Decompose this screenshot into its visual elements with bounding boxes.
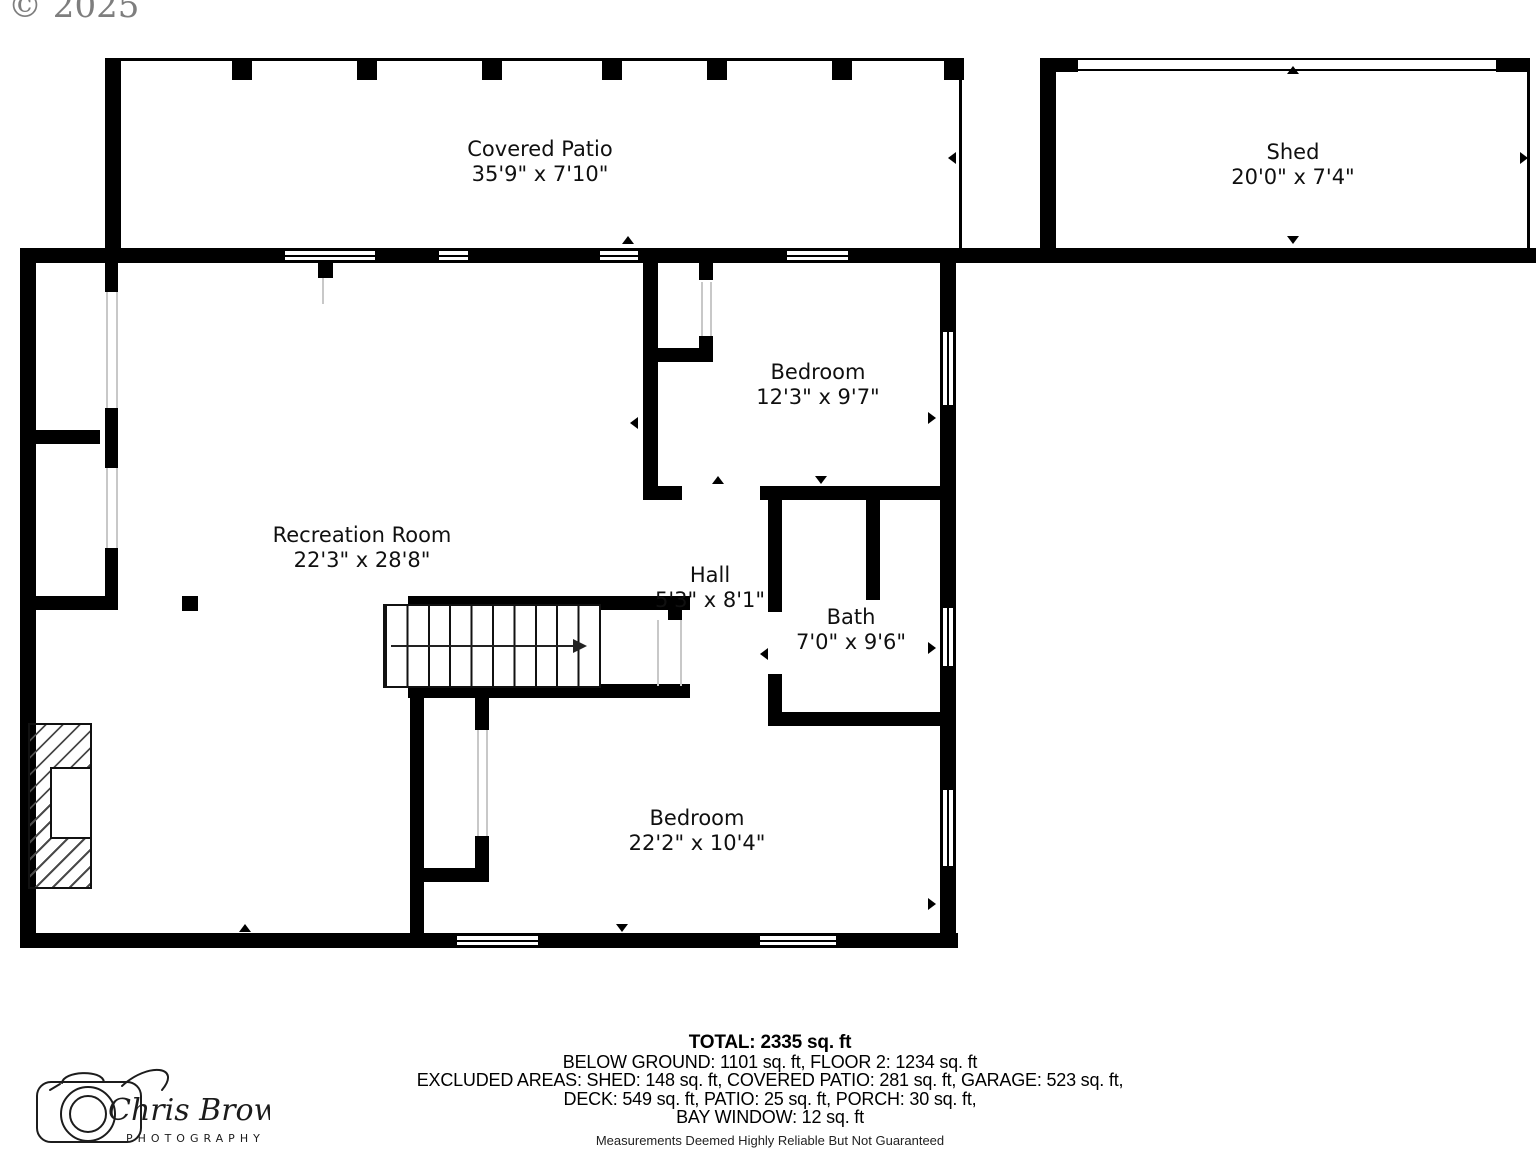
wall-stub: [105, 262, 118, 292]
wall-bedroom1-bottom-a: [643, 486, 682, 500]
summary-total: TOTAL: 2335 sq. ft: [300, 1034, 1240, 1053]
room-name: Bedroom: [693, 360, 943, 385]
room-name: Bath: [756, 605, 946, 630]
window: [455, 934, 540, 947]
door-arrow-icon: [948, 152, 956, 164]
patio-post: [232, 58, 252, 80]
patio-post: [707, 58, 727, 80]
wall-bedroom2-left: [410, 690, 424, 948]
door-jamb-line: [116, 468, 118, 548]
logo-name: Chris Brown: [108, 1093, 270, 1128]
wall-left-closet-divider-1: [20, 430, 100, 444]
floor-plan-page: © 2025: [0, 0, 1536, 1152]
door-arrow-icon: [815, 476, 827, 484]
room-name: Shed: [1168, 140, 1418, 165]
door-arrow-icon: [110, 420, 118, 432]
fireplace: [28, 723, 92, 889]
copyright-watermark: © 2025: [8, 0, 139, 26]
summary-line: BAY WINDOW: 12 sq. ft: [300, 1108, 1240, 1127]
wall-bath-bottom: [768, 712, 956, 726]
door-jamb-line: [322, 278, 324, 304]
door-arrow-icon: [1046, 152, 1054, 164]
patio-right-line: [959, 58, 962, 250]
window: [437, 249, 470, 262]
camera-icon: Chris Brown PHOTOGRAPHY: [30, 1056, 270, 1152]
door-arrow-icon: [630, 417, 638, 429]
room-dims: 20'0" x 7'4": [1168, 165, 1418, 190]
door-arrow-icon: [621, 688, 633, 696]
wall-top-exterior: [20, 248, 1536, 263]
room-dims: 35'9" x 7'10": [390, 162, 690, 187]
door-arrow-icon: [928, 898, 936, 910]
patio-post: [832, 58, 852, 80]
wall-stub: [318, 262, 333, 278]
window: [598, 249, 640, 262]
summary-line: EXCLUDED AREAS: SHED: 148 sq. ft, COVERE…: [300, 1071, 1240, 1090]
wall-bedroom1-left: [643, 258, 658, 500]
room-name: Hall: [630, 563, 790, 588]
window: [283, 249, 377, 262]
room-label-bedroom-2: Bedroom 22'2" x 10'4": [572, 806, 822, 856]
window: [941, 788, 955, 868]
wall-left-closet-divider-2: [20, 596, 112, 610]
support-post: [182, 596, 198, 611]
room-label-bath: Bath 7'0" x 9'6": [756, 605, 946, 655]
door-jamb-line: [116, 292, 118, 408]
stair-direction-line: [391, 645, 573, 647]
shed-corner-cap-right: [1496, 58, 1530, 72]
window: [785, 249, 850, 262]
patio-post: [602, 58, 622, 80]
measurement-disclaimer: Measurements Deemed Highly Reliable But …: [450, 1133, 1090, 1148]
area-summary: TOTAL: 2335 sq. ft BELOW GROUND: 1101 sq…: [300, 1034, 1240, 1127]
photographer-logo: Chris Brown PHOTOGRAPHY: [30, 1056, 270, 1152]
wall-bedroom2-closet: [410, 868, 489, 882]
door-arrow-icon: [1287, 66, 1299, 74]
room-dims: 22'2" x 10'4": [572, 831, 822, 856]
wall-stub: [699, 258, 713, 280]
door-jamb-line: [701, 282, 703, 336]
room-label-shed: Shed 20'0" x 7'4": [1168, 140, 1418, 190]
door-arrow-icon: [1520, 152, 1528, 164]
door-jamb-line: [680, 620, 682, 686]
wall-stub: [105, 408, 118, 468]
room-dims: 12'3" x 9'7": [693, 385, 943, 410]
door-arrow-icon: [712, 476, 724, 484]
shed-corner-cap-left: [1040, 58, 1078, 72]
patio-post: [357, 58, 377, 80]
wall-bedroom1-bottom-b: [760, 486, 956, 500]
summary-line: DECK: 549 sq. ft, PATIO: 25 sq. ft, PORC…: [300, 1090, 1240, 1109]
door-jamb-line: [657, 620, 659, 686]
door-arrow-icon: [616, 924, 628, 932]
patio-post: [482, 58, 502, 80]
shed-top-line: [1076, 58, 1498, 60]
wall-stub: [475, 690, 489, 730]
room-name: Covered Patio: [390, 137, 690, 162]
window: [758, 934, 838, 947]
wall-stub: [105, 548, 118, 610]
door-arrow-icon: [847, 714, 859, 722]
door-arrow-icon: [622, 236, 634, 244]
logo-subtitle: PHOTOGRAPHY: [126, 1132, 265, 1145]
door-arrow-icon: [112, 152, 120, 164]
room-dims: 7'0" x 9'6": [756, 630, 946, 655]
window: [941, 330, 955, 407]
stair-direction-arrow-icon: [573, 639, 587, 653]
room-name: Recreation Room: [212, 523, 512, 548]
door-jamb-line: [477, 730, 479, 836]
door-arrow-icon: [239, 924, 251, 932]
staircase: [383, 604, 601, 688]
door-arrow-icon: [928, 412, 936, 424]
room-label-covered-patio: Covered Patio 35'9" x 7'10": [390, 137, 690, 187]
door-jamb-line: [486, 730, 488, 836]
door-jamb-line: [106, 468, 108, 548]
door-arrow-icon: [1287, 236, 1299, 244]
door-jamb-line: [106, 292, 108, 408]
room-name: Bedroom: [572, 806, 822, 831]
room-dims: 22'3" x 28'8": [212, 548, 512, 573]
room-label-bedroom-1: Bedroom 12'3" x 9'7": [693, 360, 943, 410]
wall-bath-divider: [866, 500, 880, 600]
room-label-recreation-room: Recreation Room 22'3" x 28'8": [212, 523, 512, 573]
door-jamb-line: [710, 282, 712, 336]
patio-corner-post: [944, 58, 964, 80]
summary-line: BELOW GROUND: 1101 sq. ft, FLOOR 2: 1234…: [300, 1053, 1240, 1072]
firebox: [50, 767, 92, 839]
